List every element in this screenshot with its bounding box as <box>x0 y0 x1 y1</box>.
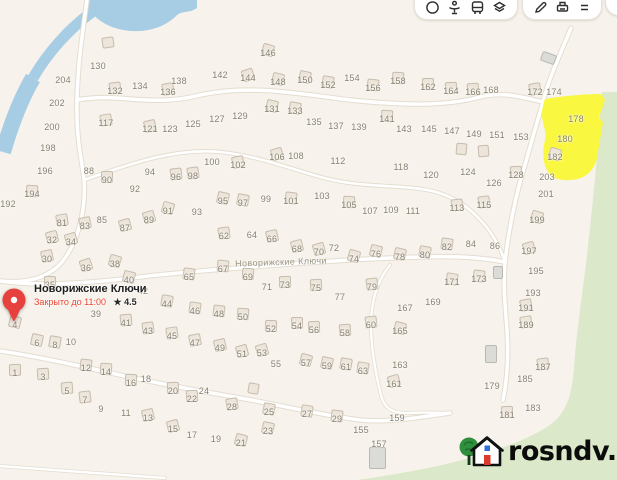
plot-number: 87 <box>120 223 130 233</box>
plot-number: 9 <box>98 404 103 414</box>
plot-number: 78 <box>395 252 405 262</box>
plot-number: 178 <box>568 114 584 124</box>
traffic-button[interactable] <box>421 0 443 16</box>
plot-number: 149 <box>466 129 482 139</box>
plot-number: 174 <box>546 87 562 97</box>
star-icon: ★ <box>114 297 122 307</box>
plot-number: 195 <box>528 266 544 276</box>
plot-number: 155 <box>353 425 369 435</box>
plot-number: 145 <box>421 124 437 134</box>
plot-number: 77 <box>335 292 345 302</box>
plot-number: 172 <box>527 87 543 97</box>
plot-number: 82 <box>442 242 452 252</box>
plot-number: 64 <box>247 230 257 240</box>
plot-number: 157 <box>371 439 387 449</box>
toolbar-group-map-modes <box>414 0 518 20</box>
plot-number: 127 <box>209 114 225 124</box>
plot-number: 7 <box>82 395 87 405</box>
plot-number: 13 <box>143 413 153 423</box>
plot-number: 169 <box>425 297 441 307</box>
place-status: Закрыто до 11:00 <box>34 297 106 307</box>
plot-number: 84 <box>466 239 476 249</box>
place-popup[interactable]: Новорижские Ключи Закрыто до 11:00 ★ 4.5 <box>34 283 194 308</box>
plot-number: 101 <box>283 196 299 206</box>
plot-number: 164 <box>443 86 459 96</box>
plot-number: 8 <box>52 340 57 350</box>
plot-number: 168 <box>483 85 499 95</box>
plot-number: 6 <box>34 338 39 348</box>
plot-number: 80 <box>420 250 430 260</box>
plot-number: 102 <box>230 160 246 170</box>
plot-number: 126 <box>486 178 502 188</box>
plot-number: 15 <box>168 424 178 434</box>
plot-number: 93 <box>192 207 202 217</box>
plot-number: 100 <box>204 157 220 167</box>
plot-number: 30 <box>42 254 52 264</box>
plot-number: 58 <box>340 328 350 338</box>
plot-number: 62 <box>219 231 229 241</box>
plot-number: 142 <box>212 70 228 80</box>
plot-number: 49 <box>215 343 225 353</box>
plot-number: 113 <box>450 203 465 213</box>
plot-number: 196 <box>37 166 53 176</box>
menu-button[interactable] <box>573 0 595 16</box>
pedestrian-button[interactable] <box>444 0 466 16</box>
plot-number: 38 <box>110 259 120 269</box>
plot-number: 71 <box>262 282 272 292</box>
plot-number: 39 <box>91 309 101 319</box>
plot-number: 47 <box>190 338 200 348</box>
watermark: rosndv.ru <box>458 434 617 468</box>
building-icon <box>493 266 503 279</box>
plot-number: 128 <box>508 170 524 180</box>
plot-number: 79 <box>367 282 377 292</box>
plot-number: 48 <box>214 309 224 319</box>
plot-number: 118 <box>394 162 409 172</box>
plot-number: 61 <box>341 362 351 372</box>
plot-number: 138 <box>171 76 187 86</box>
plot-number: 183 <box>525 403 541 413</box>
building-icon <box>101 36 114 49</box>
plot-number: 94 <box>145 167 155 177</box>
plot-number: 51 <box>237 349 247 359</box>
plot-number: 29 <box>332 414 342 424</box>
plot-number: 150 <box>297 75 313 85</box>
plot-number: 109 <box>383 205 399 215</box>
plot-number: 19 <box>211 434 221 444</box>
plot-number: 124 <box>460 167 476 177</box>
plot-number: 24 <box>199 386 209 396</box>
plot-number: 166 <box>465 87 481 97</box>
plot-number: 17 <box>187 430 197 440</box>
plot-number: 133 <box>287 106 303 116</box>
plot-number: 182 <box>547 152 563 162</box>
plot-number: 134 <box>132 81 148 91</box>
plot-number: 185 <box>517 374 533 384</box>
plot-number: 107 <box>362 206 378 216</box>
plot-number: 121 <box>142 124 158 134</box>
plot-number: 67 <box>218 264 228 274</box>
plot-number: 72 <box>329 243 339 253</box>
plot-number: 1 <box>12 368 17 378</box>
building-icon <box>247 382 260 395</box>
plot-number: 144 <box>240 73 256 83</box>
plot-number: 181 <box>499 410 515 420</box>
maps-app: { "colors": { "bg": "#f7f3ec", "water": … <box>0 0 617 480</box>
plot-number: 147 <box>444 126 460 136</box>
place-rating: ★ 4.5 <box>114 297 137 307</box>
plot-number: 156 <box>365 83 381 93</box>
plot-number: 154 <box>344 73 360 83</box>
plot-number: 57 <box>301 358 311 368</box>
plot-number: 89 <box>144 215 154 225</box>
plot-number: 198 <box>40 143 56 153</box>
plot-number: 88 <box>84 166 94 176</box>
plot-number: 106 <box>269 152 285 162</box>
plot-number: 12 <box>81 363 91 373</box>
plot-number: 74 <box>349 254 359 264</box>
plot-number: 55 <box>271 359 281 369</box>
plot-number: 111 <box>406 206 420 216</box>
plot-number: 18 <box>141 374 151 384</box>
plot-number: 161 <box>386 379 402 389</box>
plot-number: 75 <box>311 283 321 293</box>
plot-number: 108 <box>288 151 304 161</box>
building-icon <box>369 447 386 469</box>
plot-number: 152 <box>320 80 336 90</box>
plot-number: 117 <box>99 118 114 128</box>
plot-number: 85 <box>97 215 107 225</box>
plot-number: 91 <box>163 206 173 216</box>
layers-icon <box>492 0 507 15</box>
plot-number: 76 <box>371 249 381 259</box>
plot-number: 16 <box>126 378 136 388</box>
plot-number: 90 <box>102 175 112 185</box>
plot-number: 137 <box>328 121 344 131</box>
plot-number: 25 <box>264 407 274 417</box>
layers-button[interactable] <box>489 0 511 16</box>
plot-number: 63 <box>358 366 368 376</box>
plot-number: 120 <box>423 170 439 180</box>
plot-number: 14 <box>101 367 111 377</box>
plot-number: 148 <box>270 77 286 87</box>
plot-number: 180 <box>557 134 573 144</box>
plot-number: 22 <box>187 394 197 404</box>
plot-number: 179 <box>484 381 500 391</box>
plot-number: 132 <box>107 86 123 96</box>
traffic-icon <box>425 0 440 15</box>
plot-number: 66 <box>267 234 277 244</box>
plot-number: 163 <box>392 360 408 370</box>
plot-number: 193 <box>525 288 541 298</box>
plot-number: 112 <box>331 156 346 166</box>
plot-number: 189 <box>518 320 534 330</box>
plot-number: 162 <box>420 82 436 92</box>
plot-number: 20 <box>168 386 178 396</box>
plot-number: 59 <box>322 361 332 371</box>
plot-number: 135 <box>306 117 322 127</box>
printer-icon <box>555 0 570 15</box>
plot-number: 129 <box>232 111 248 121</box>
map-canvas[interactable]: 1302042022001981961941921321341361381171… <box>0 0 617 480</box>
plot-number: 56 <box>309 325 319 335</box>
menu-icon <box>577 0 592 15</box>
plot-number: 98 <box>188 171 198 181</box>
plot-number: 173 <box>471 274 487 284</box>
plot-number: 97 <box>238 198 248 208</box>
plot-number: 143 <box>396 124 412 134</box>
river-lower <box>3 78 33 152</box>
plot-number: 151 <box>489 130 505 140</box>
plot-number: 167 <box>397 303 413 313</box>
plot-number: 130 <box>90 61 106 71</box>
plot-number: 52 <box>266 324 276 334</box>
plot-number: 73 <box>280 280 290 290</box>
plot-number: 60 <box>366 320 376 330</box>
plot-number: 204 <box>55 75 71 85</box>
plot-number: 103 <box>314 191 330 201</box>
plot-number: 139 <box>351 122 367 132</box>
plot-number: 83 <box>80 221 90 231</box>
plot-number: 200 <box>44 122 60 132</box>
plot-number: 27 <box>302 409 312 419</box>
pedestrian-icon <box>447 0 462 15</box>
plot-number: 68 <box>292 244 302 254</box>
plot-number: 50 <box>238 312 248 322</box>
building-icon <box>477 145 489 158</box>
plot-number: 159 <box>389 413 405 423</box>
plot-number: 192 <box>0 199 16 209</box>
plot-number: 23 <box>263 426 273 436</box>
plot-number: 131 <box>264 104 280 114</box>
plot-number: 158 <box>390 76 406 86</box>
plot-number: 99 <box>261 194 271 204</box>
plot-number: 194 <box>24 189 40 199</box>
plot-number: 5 <box>64 386 69 396</box>
plot-number: 165 <box>392 326 408 336</box>
plot-number: 86 <box>490 241 500 251</box>
map-pin[interactable] <box>1 287 28 325</box>
plot-number: 36 <box>81 263 91 273</box>
plot-number: 53 <box>257 348 267 358</box>
highlighted-parcel <box>542 94 605 180</box>
plot-number: 96 <box>171 172 181 182</box>
plot-number: 115 <box>477 200 492 210</box>
plot-number: 197 <box>521 246 537 256</box>
plot-number: 201 <box>538 189 554 199</box>
plot-number: 43 <box>143 326 153 336</box>
plot-number: 171 <box>444 277 460 287</box>
transit-button[interactable] <box>466 0 488 16</box>
plot-number: 54 <box>292 321 302 331</box>
plot-number: 146 <box>260 48 276 58</box>
watermark-text: rosndv.ru <box>508 436 617 467</box>
plot-number: 28 <box>227 402 237 412</box>
pencil-icon <box>533 0 548 15</box>
place-title: Новорижские Ключи <box>34 283 194 295</box>
plot-number: 3 <box>40 372 45 382</box>
plot-number: 95 <box>218 196 228 206</box>
pond <box>88 0 197 31</box>
plot-number: 92 <box>130 184 140 194</box>
plot-number: 34 <box>66 237 76 247</box>
plot-number: 203 <box>539 172 555 182</box>
print-button[interactable] <box>551 0 573 16</box>
place-subtitle: Закрыто до 11:00 ★ 4.5 <box>34 297 194 308</box>
plot-number: 191 <box>518 303 534 313</box>
plot-number: 41 <box>121 318 131 328</box>
plot-number: 21 <box>236 438 246 448</box>
plot-number: 202 <box>49 98 65 108</box>
plot-number: 65 <box>184 272 194 282</box>
plot-number: 199 <box>529 215 545 225</box>
plot-number: 125 <box>185 119 201 129</box>
plot-number: 32 <box>47 235 57 245</box>
house-tree-logo-icon <box>458 434 504 468</box>
plot-number: 10 <box>66 337 76 347</box>
plot-number: 141 <box>379 114 395 124</box>
plot-number: 81 <box>57 218 67 228</box>
toolbar-group-tools <box>522 0 602 20</box>
building-icon <box>485 345 497 363</box>
plot-number: 136 <box>160 87 176 97</box>
plot-number: 123 <box>162 124 178 134</box>
plot-number: 11 <box>121 408 131 418</box>
plot-number: 187 <box>535 362 551 372</box>
plot-number: 153 <box>513 132 529 142</box>
bus-icon <box>470 0 485 15</box>
measure-button[interactable] <box>529 0 551 16</box>
building-icon <box>455 143 467 156</box>
plot-number: 69 <box>243 272 253 282</box>
plot-number: 105 <box>341 200 357 210</box>
plot-number: 45 <box>167 331 177 341</box>
